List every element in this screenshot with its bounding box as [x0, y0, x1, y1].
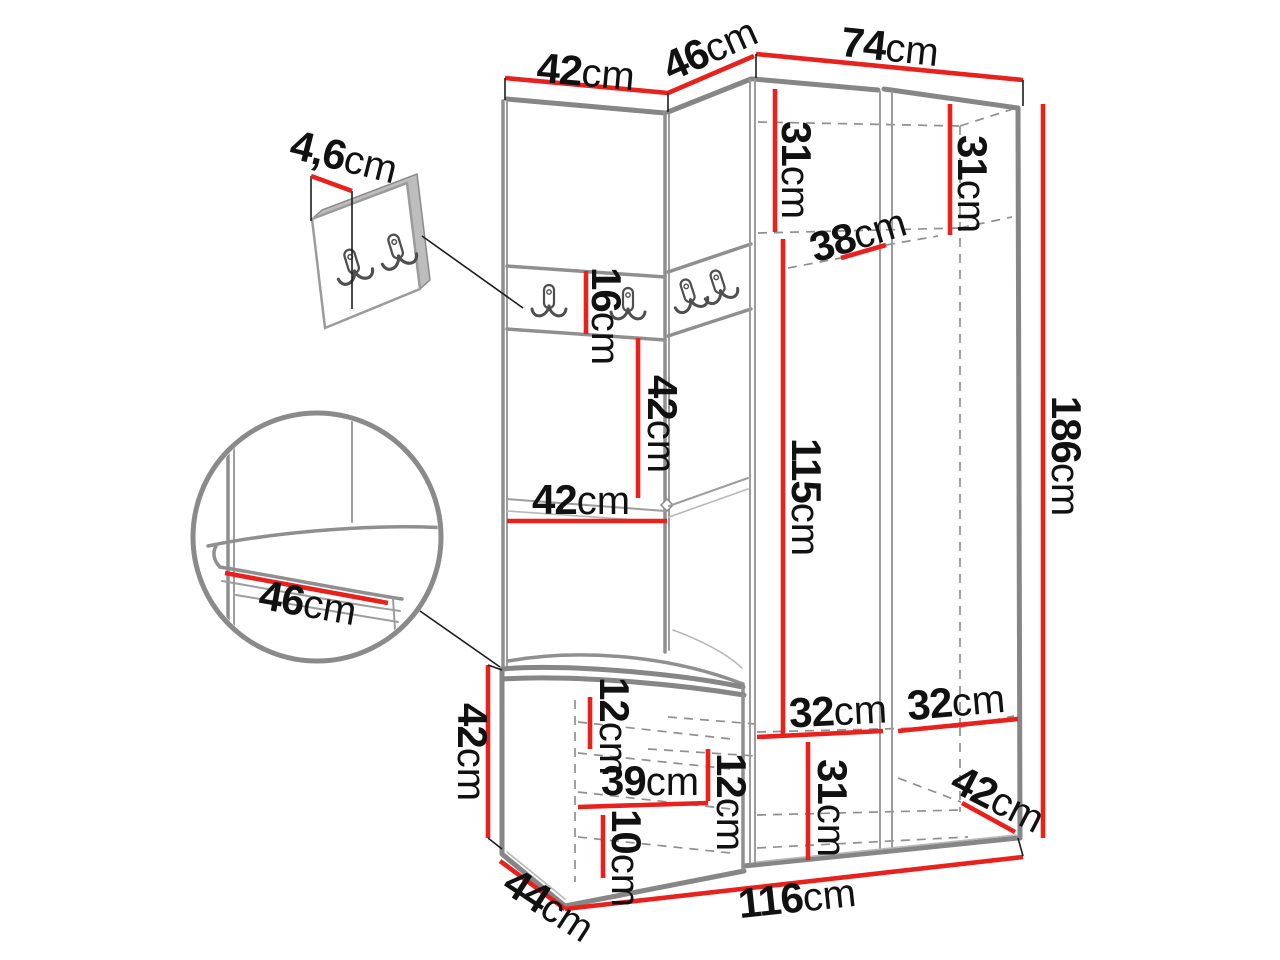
dim-label-bench-bottom-height: 10cm: [603, 809, 650, 907]
dim-label-hook-panel-thickness: 4,6cm: [286, 121, 403, 193]
dim-label-lower-right-depth: 42cm: [944, 755, 1053, 841]
dim-label-hook-rail-height: 16cm: [583, 267, 630, 365]
dim-label-total-height: 186cm: [1043, 396, 1090, 516]
furniture-dimension-diagram: 42cm 46cm 74cm 4,6cm 31cm 31cm 38cm 16cm…: [0, 0, 1280, 960]
dim-label-top-wardrobe-width: 74cm: [839, 18, 941, 75]
dim-label-bench-shelf-gap: 12cm: [708, 753, 755, 851]
dim-label-shelf-depth: 38cm: [804, 198, 912, 272]
dim-label-shelf-left-height: 31cm: [773, 121, 820, 219]
dim-label-lower-compartment-height: 31cm: [809, 759, 856, 857]
diagram-canvas: 42cm 46cm 74cm 4,6cm 31cm 31cm 38cm 16cm…: [0, 0, 1280, 960]
coat-hook-icon: [668, 275, 710, 315]
dim-label-hanging-space-height: 115cm: [783, 438, 830, 556]
hook-panel-detail: [311, 174, 523, 328]
detail-connector-line: [420, 611, 500, 667]
coat-hook-icon: [532, 285, 566, 316]
dim-label-bench-inner-width: 39cm: [601, 757, 699, 804]
dim-label-top-panel-width: 42cm: [535, 44, 637, 99]
dim-label-top-corner-width: 46cm: [655, 7, 764, 90]
dim-label-bench-height: 42cm: [449, 703, 496, 801]
corner-panel: [668, 79, 751, 668]
dim-label-mid-panel-height: 42cm: [639, 375, 686, 473]
dim-label-lower-right-width: 32cm: [905, 674, 1007, 729]
dim-label-lower-left-width: 32cm: [788, 684, 888, 736]
dim-label-shelf-right-height: 31cm: [949, 135, 996, 233]
dim-label-total-width: 116cm: [736, 868, 858, 927]
coat-hook-icon: [698, 266, 740, 306]
dim-label-bench-depth: 44cm: [495, 858, 603, 951]
dim-label-mid-panel-width: 42cm: [532, 476, 630, 523]
